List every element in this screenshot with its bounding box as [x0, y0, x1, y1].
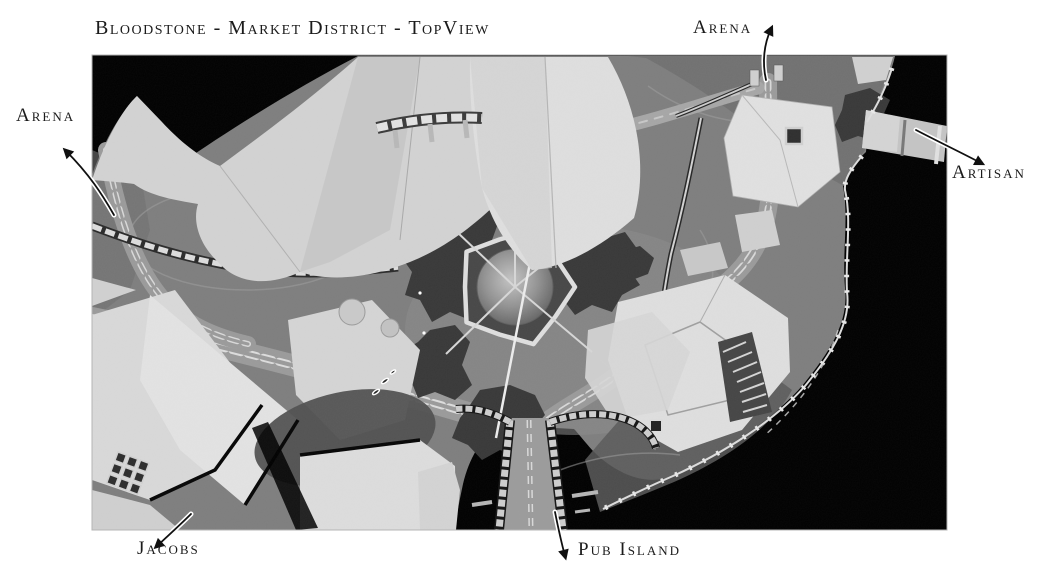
map-render	[0, 0, 1040, 584]
label-pub-island: Pub Island	[578, 540, 681, 561]
grain-overlay	[92, 55, 947, 530]
map-image	[92, 55, 947, 530]
label-jacobs: Jacobs	[137, 539, 200, 560]
label-arena-top: Arena	[693, 18, 752, 39]
label-arena-left: Arena	[16, 106, 75, 127]
map-page: Bloodstone - Market District - TopView	[0, 0, 1040, 584]
label-artisan: Artisan	[952, 163, 1026, 184]
